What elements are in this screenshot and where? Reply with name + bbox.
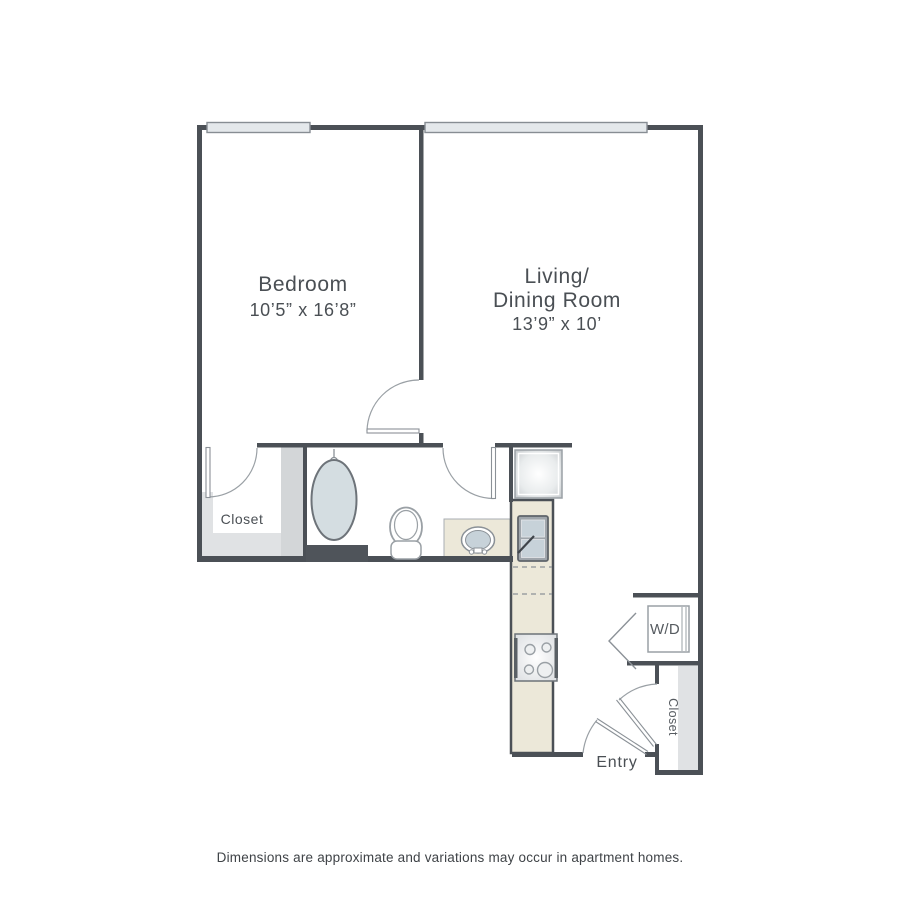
wall-entry-closet-bottom [655, 770, 703, 775]
wall-wd-top [633, 593, 698, 598]
entry-door [583, 719, 648, 755]
living-room-window [425, 123, 647, 133]
bedroom-window [207, 123, 310, 133]
hall-closet-door [206, 448, 257, 498]
bathtub [312, 449, 357, 540]
doors [206, 380, 657, 755]
bedroom-label: Bedroom [258, 273, 347, 296]
entry-closet-door [617, 684, 658, 747]
kitchen-sink [518, 516, 548, 561]
hall-closet-shelf-side [202, 492, 213, 556]
burner [542, 643, 551, 652]
entry-label: Entry [596, 754, 637, 771]
bedroom-door [367, 380, 419, 433]
bedroom-dimensions: 10’5” x 16’8” [250, 300, 357, 320]
wall-left [197, 125, 202, 562]
burner [538, 663, 553, 678]
floorplan-svg: Bedroom 10’5” x 16’8” Living/ Dining Roo… [0, 0, 900, 900]
hall-closet-shelf [202, 533, 281, 556]
burner [525, 665, 534, 674]
wall-tub-plumbing-chunk [306, 545, 368, 562]
entry-closet-shelf [678, 666, 698, 770]
floor-fills [202, 447, 698, 770]
wall-wd-bottom [627, 661, 698, 666]
refrigerator [515, 450, 562, 498]
floorplan-page: Bedroom 10’5” x 16’8” Living/ Dining Roo… [0, 0, 900, 900]
wall-hall-top-a [257, 443, 443, 448]
vanity-sink [462, 527, 495, 554]
windows [207, 123, 647, 133]
washer-dryer-label: W/D [650, 621, 680, 638]
wd-bifold-door [609, 613, 636, 669]
wall-bath-left [303, 447, 307, 557]
wall-entry-bottom [512, 752, 583, 757]
disclaimer-text: Dimensions are approximate and variation… [0, 850, 900, 865]
living-room-label-line1: Living/ [525, 265, 590, 288]
entry-closet-label: Closet [666, 698, 680, 736]
fixtures [312, 449, 690, 681]
wall-bedroom-divider [419, 125, 424, 380]
burner [525, 645, 535, 655]
wall-hall-top-b [495, 443, 572, 448]
living-room-label-line2: Dining Room [493, 289, 621, 312]
toilet [390, 508, 422, 560]
wall-right [698, 125, 703, 775]
wall-fridge-nook [509, 447, 513, 502]
walls [197, 125, 703, 775]
wall-entry-door-stub [645, 752, 657, 757]
wall-entry-closet-left-upper [655, 665, 659, 684]
bathroom-door [443, 448, 496, 499]
living-room-dimensions: 13’9” x 10’ [512, 314, 602, 334]
hall-closet-label: Closet [221, 511, 264, 527]
stove [514, 634, 558, 681]
